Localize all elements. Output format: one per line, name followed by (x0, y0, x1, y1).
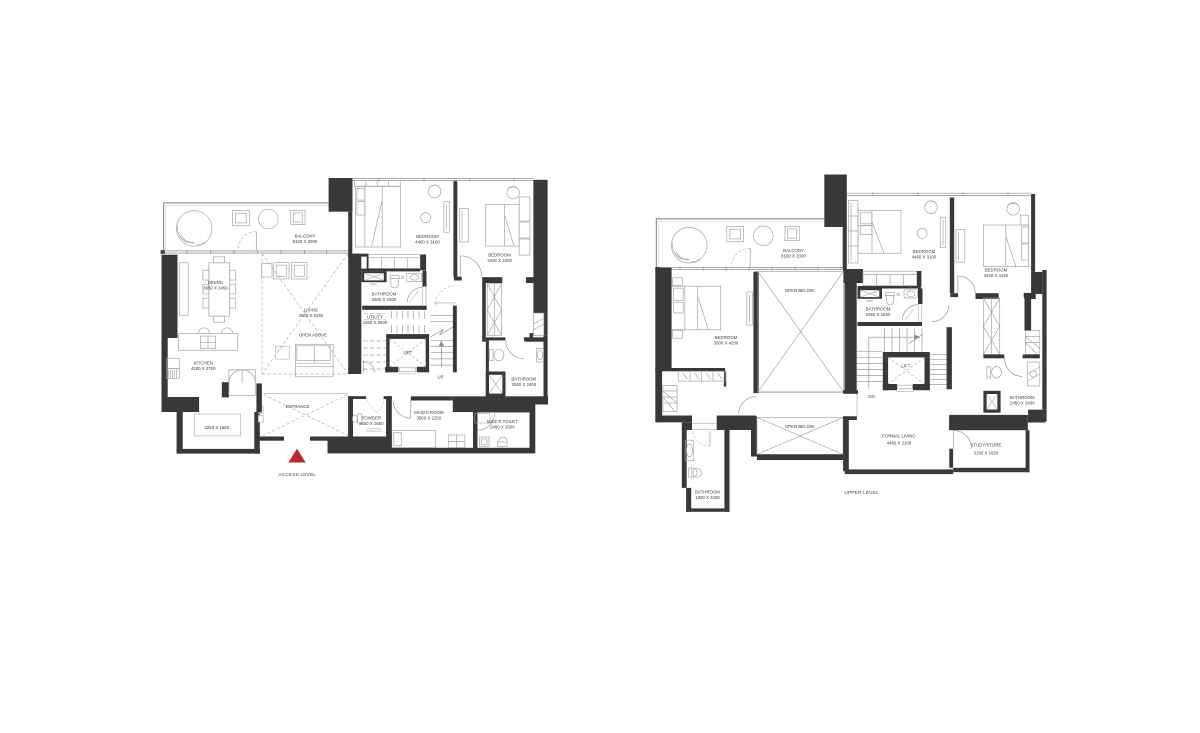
svg-text:MAID'S TOILET: MAID'S TOILET (487, 419, 518, 424)
svg-text:BATHROOM: BATHROOM (1010, 395, 1035, 400)
svg-text:3150 X 1650: 3150 X 1650 (974, 450, 999, 455)
svg-text:DINING: DINING (208, 280, 224, 285)
svg-text:4460 X 3100: 4460 X 3100 (415, 240, 440, 245)
svg-text:POWDER: POWDER (361, 416, 381, 421)
svg-text:DN: DN (868, 394, 874, 399)
svg-text:1900 X 3400: 1900 X 3400 (695, 495, 720, 500)
svg-text:STUDY/STORE: STUDY/STORE (971, 443, 1002, 448)
svg-text:BATHROOM: BATHROOM (695, 490, 720, 495)
svg-text:BALCONY: BALCONY (783, 248, 804, 253)
svg-text:BATHROOM: BATHROOM (372, 292, 397, 297)
svg-text:BATHROOM: BATHROOM (866, 307, 891, 312)
svg-text:OPEN BELOW: OPEN BELOW (785, 288, 815, 293)
svg-text:4250 X 2750: 4250 X 2750 (191, 366, 216, 371)
svg-text:UPPER LEVEL: UPPER LEVEL (844, 490, 878, 495)
svg-text:3250 X 1650: 3250 X 1650 (204, 425, 229, 430)
svg-text:MAID'S ROOM: MAID'S ROOM (414, 410, 444, 415)
svg-text:BEDROOM: BEDROOM (913, 249, 936, 254)
svg-text:ACCESS LEVEL: ACCESS LEVEL (279, 472, 317, 477)
svg-text:BEDROOM: BEDROOM (416, 234, 439, 239)
svg-text:LIVING: LIVING (304, 308, 319, 313)
svg-text:2550 X 2400: 2550 X 2400 (511, 382, 536, 387)
svg-text:BEDROOM: BEDROOM (985, 267, 1008, 272)
svg-text:LIFT: LIFT (403, 350, 412, 355)
svg-text:3800 X 5350: 3800 X 5350 (299, 313, 324, 318)
svg-text:1800 X 1650: 1800 X 1650 (359, 421, 384, 426)
svg-text:OPEN BELOW: OPEN BELOW (785, 424, 815, 429)
svg-text:2550 X 1650: 2550 X 1650 (866, 312, 891, 317)
svg-text:2400 X 1500: 2400 X 1500 (490, 425, 515, 430)
svg-text:BEDROOM: BEDROOM (715, 335, 738, 340)
svg-text:2450 X 2400: 2450 X 2400 (1010, 400, 1035, 405)
svg-text:BEDROOM: BEDROOM (488, 252, 511, 257)
svg-text:UP: UP (437, 374, 443, 379)
svg-text:UTILITY: UTILITY (367, 314, 383, 319)
svg-text:OPEN ABOVE: OPEN ABOVE (299, 333, 327, 338)
svg-text:1650 X 2600: 1650 X 2600 (363, 320, 388, 325)
svg-text:3400 X 4200: 3400 X 4200 (487, 258, 512, 263)
svg-text:3800 X 4200: 3800 X 4200 (714, 341, 739, 346)
svg-text:BALCONY: BALCONY (295, 234, 316, 239)
svg-text:3600 X 2250: 3600 X 2250 (416, 416, 441, 421)
svg-text:4460 X 2100: 4460 X 2100 (887, 441, 912, 446)
svg-text:FORMAL LIVING: FORMAL LIVING (882, 433, 916, 438)
svg-text:3400 X 4150: 3400 X 4150 (984, 273, 1009, 278)
svg-text:4460 X 3100: 4460 X 3100 (912, 254, 937, 259)
svg-text:2600 X 1900: 2600 X 1900 (372, 297, 397, 302)
svg-text:8100 X 2000: 8100 X 2000 (781, 254, 806, 259)
svg-text:8100 X 2000: 8100 X 2000 (293, 239, 318, 244)
svg-text:LIFT: LIFT (902, 363, 911, 368)
svg-text:ENTRANCE: ENTRANCE (286, 404, 310, 409)
svg-text:BATHROOM: BATHROOM (511, 376, 536, 381)
svg-text:3650 X 3450: 3650 X 3450 (203, 286, 228, 291)
svg-text:KITCHEN: KITCHEN (194, 361, 213, 366)
